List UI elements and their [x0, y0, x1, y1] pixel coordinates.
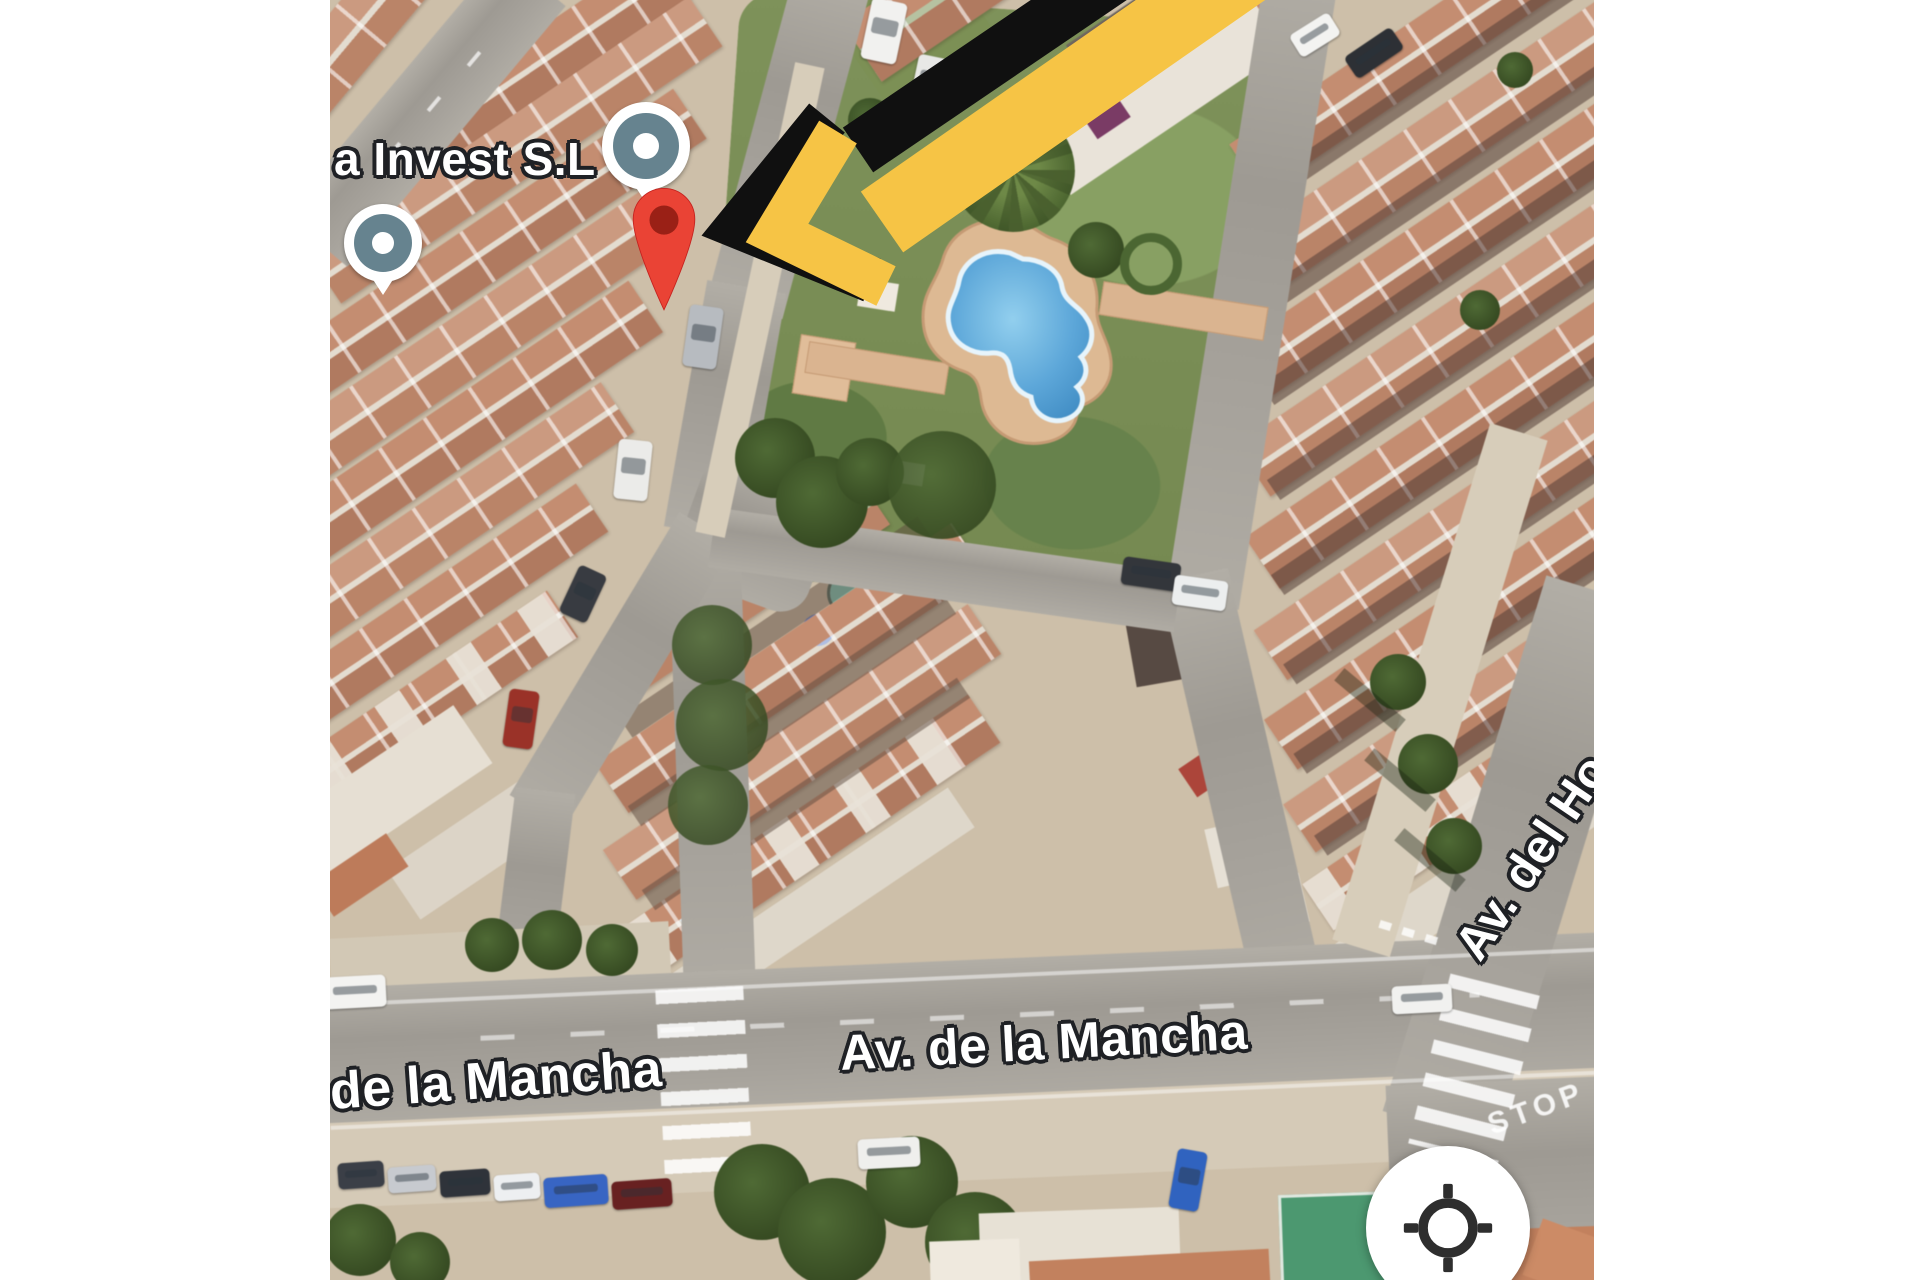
marker-tail [372, 278, 394, 295]
car [857, 1136, 920, 1169]
tree [390, 1232, 450, 1280]
tree [522, 910, 582, 970]
tree [888, 431, 996, 539]
poi-label: a Invest S.L [334, 132, 596, 186]
map-viewport[interactable]: STOP [330, 0, 1594, 1280]
car [558, 564, 607, 624]
building [929, 1238, 1021, 1280]
car [439, 1168, 491, 1197]
marker-hole [633, 133, 659, 159]
street-tree [672, 605, 752, 685]
car [502, 688, 540, 750]
tree [1497, 52, 1533, 88]
tree [330, 1204, 396, 1276]
screenshot-root: STOP [0, 0, 1920, 1280]
car [543, 1174, 609, 1208]
car [387, 1164, 437, 1193]
marker-hole [372, 232, 394, 254]
car [493, 1172, 541, 1201]
street-tree [668, 765, 748, 845]
tree [586, 924, 638, 976]
poi-dot-marker[interactable] [344, 204, 422, 302]
car [1391, 983, 1452, 1014]
tree [1068, 222, 1124, 278]
tree [465, 918, 519, 972]
zebra-crossing [655, 986, 753, 1175]
car [330, 974, 387, 1009]
sun-pad [857, 278, 899, 312]
palm-tree [951, 108, 1075, 232]
car [337, 1160, 385, 1189]
crosshair-icon [1400, 1180, 1496, 1276]
tree [1460, 290, 1500, 330]
street-tree [676, 679, 768, 771]
ring-bush [1120, 233, 1182, 295]
destination-pin-icon[interactable] [620, 184, 708, 316]
car [613, 438, 653, 501]
car [611, 1178, 673, 1210]
tree [848, 98, 892, 142]
